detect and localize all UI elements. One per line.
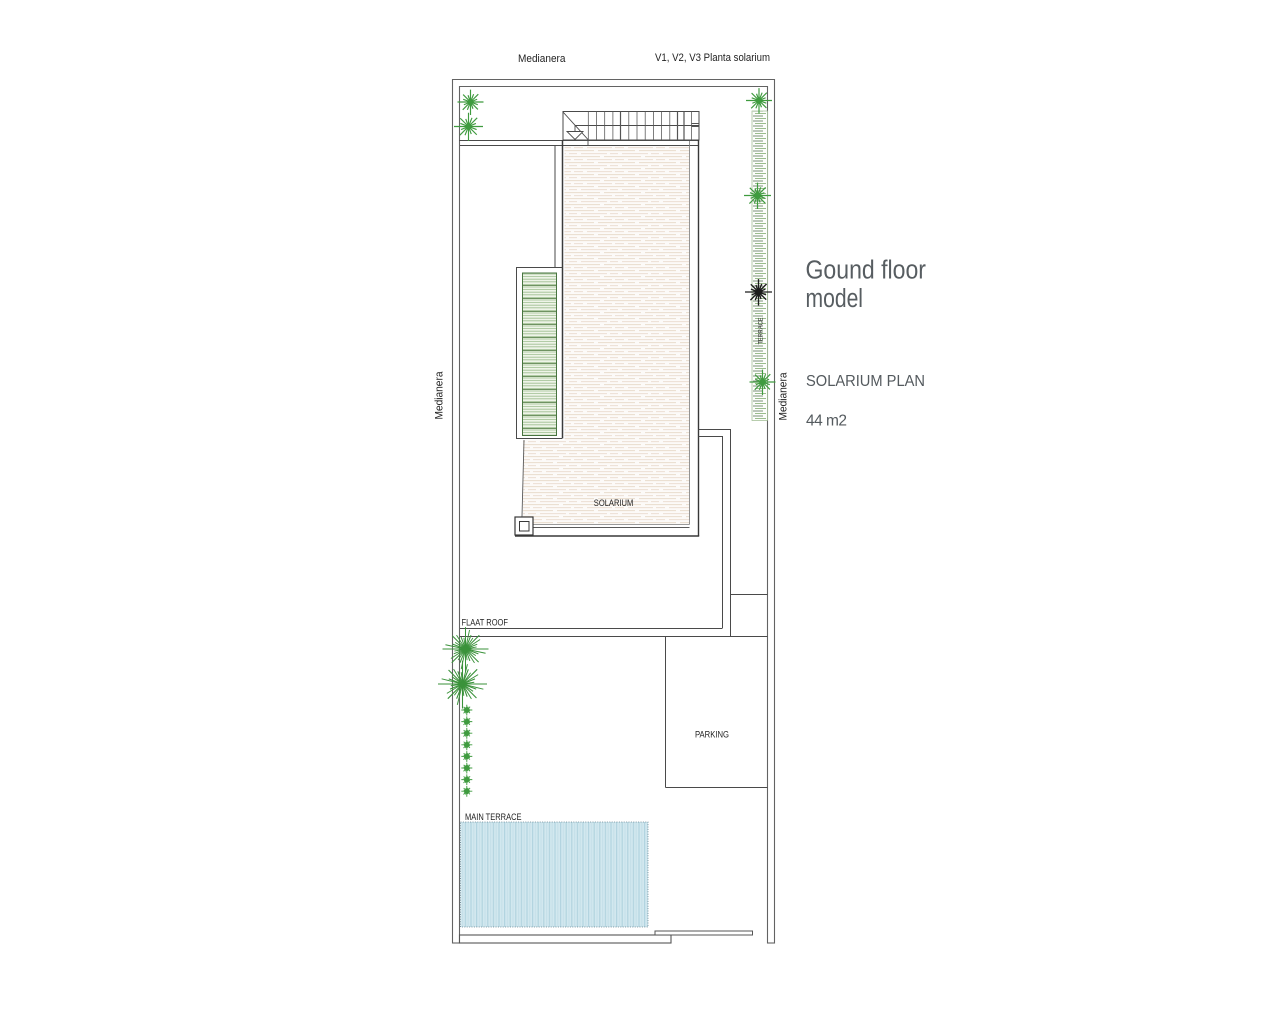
svg-text:model: model	[806, 285, 864, 313]
svg-text:Gound floor: Gound floor	[806, 257, 927, 285]
svg-text:V1, V2, V3 Planta solarium: V1, V2, V3 Planta solarium	[655, 52, 770, 64]
svg-text:Medianera: Medianera	[434, 371, 446, 420]
svg-text:SOLARIUM PLAN: SOLARIUM PLAN	[806, 373, 925, 390]
svg-text:FLAAT ROOF: FLAAT ROOF	[462, 618, 509, 629]
svg-text:Medianera: Medianera	[518, 53, 566, 65]
svg-text:Medianera: Medianera	[778, 372, 790, 421]
svg-text:MAIN TERRACE: MAIN TERRACE	[465, 812, 522, 823]
svg-text:SOLARIUM: SOLARIUM	[594, 498, 634, 509]
svg-text:TERRACE: TERRACE	[758, 317, 765, 345]
svg-text:PARKING: PARKING	[695, 730, 729, 741]
svg-text:44 m2: 44 m2	[806, 413, 847, 430]
